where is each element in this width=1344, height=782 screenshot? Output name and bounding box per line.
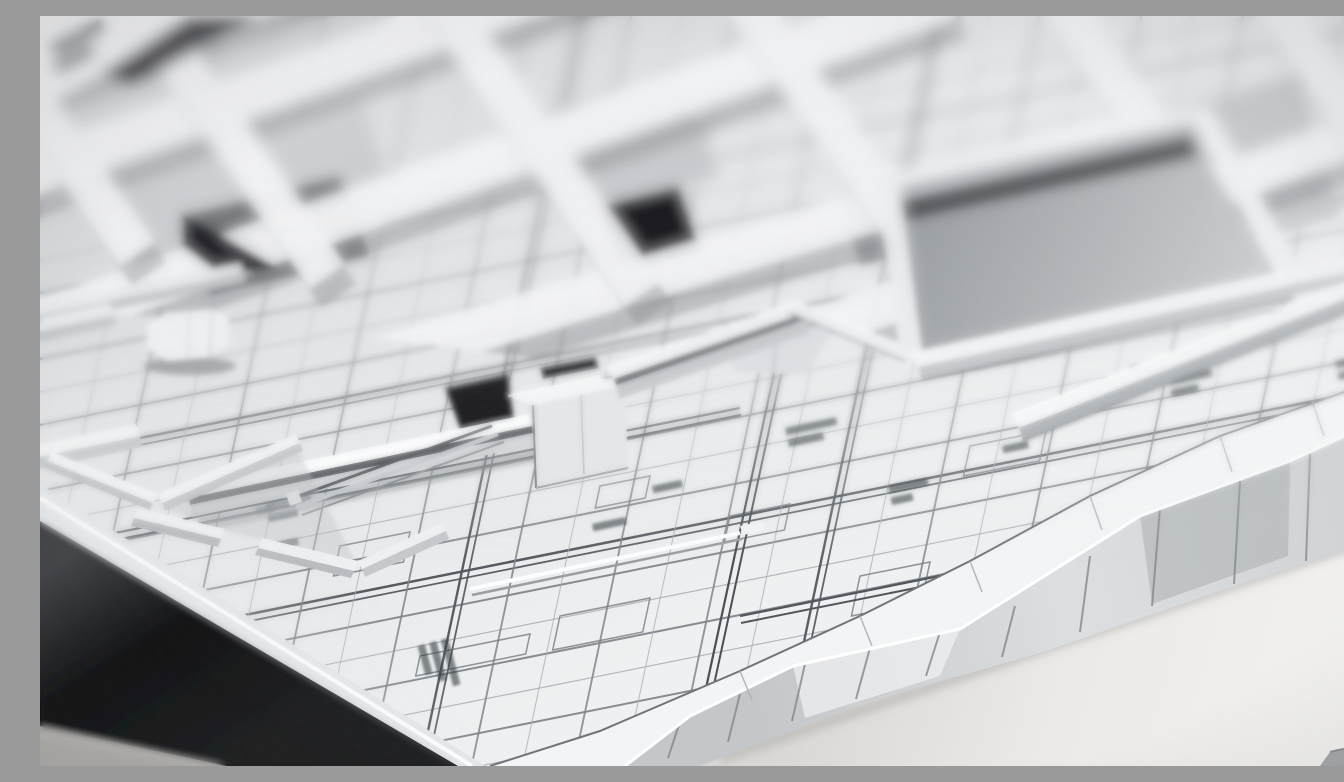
photo: Close-up of a monochrome architectural s… [40,16,1344,766]
photo-canvas [40,16,1344,766]
vignette [40,16,1344,766]
